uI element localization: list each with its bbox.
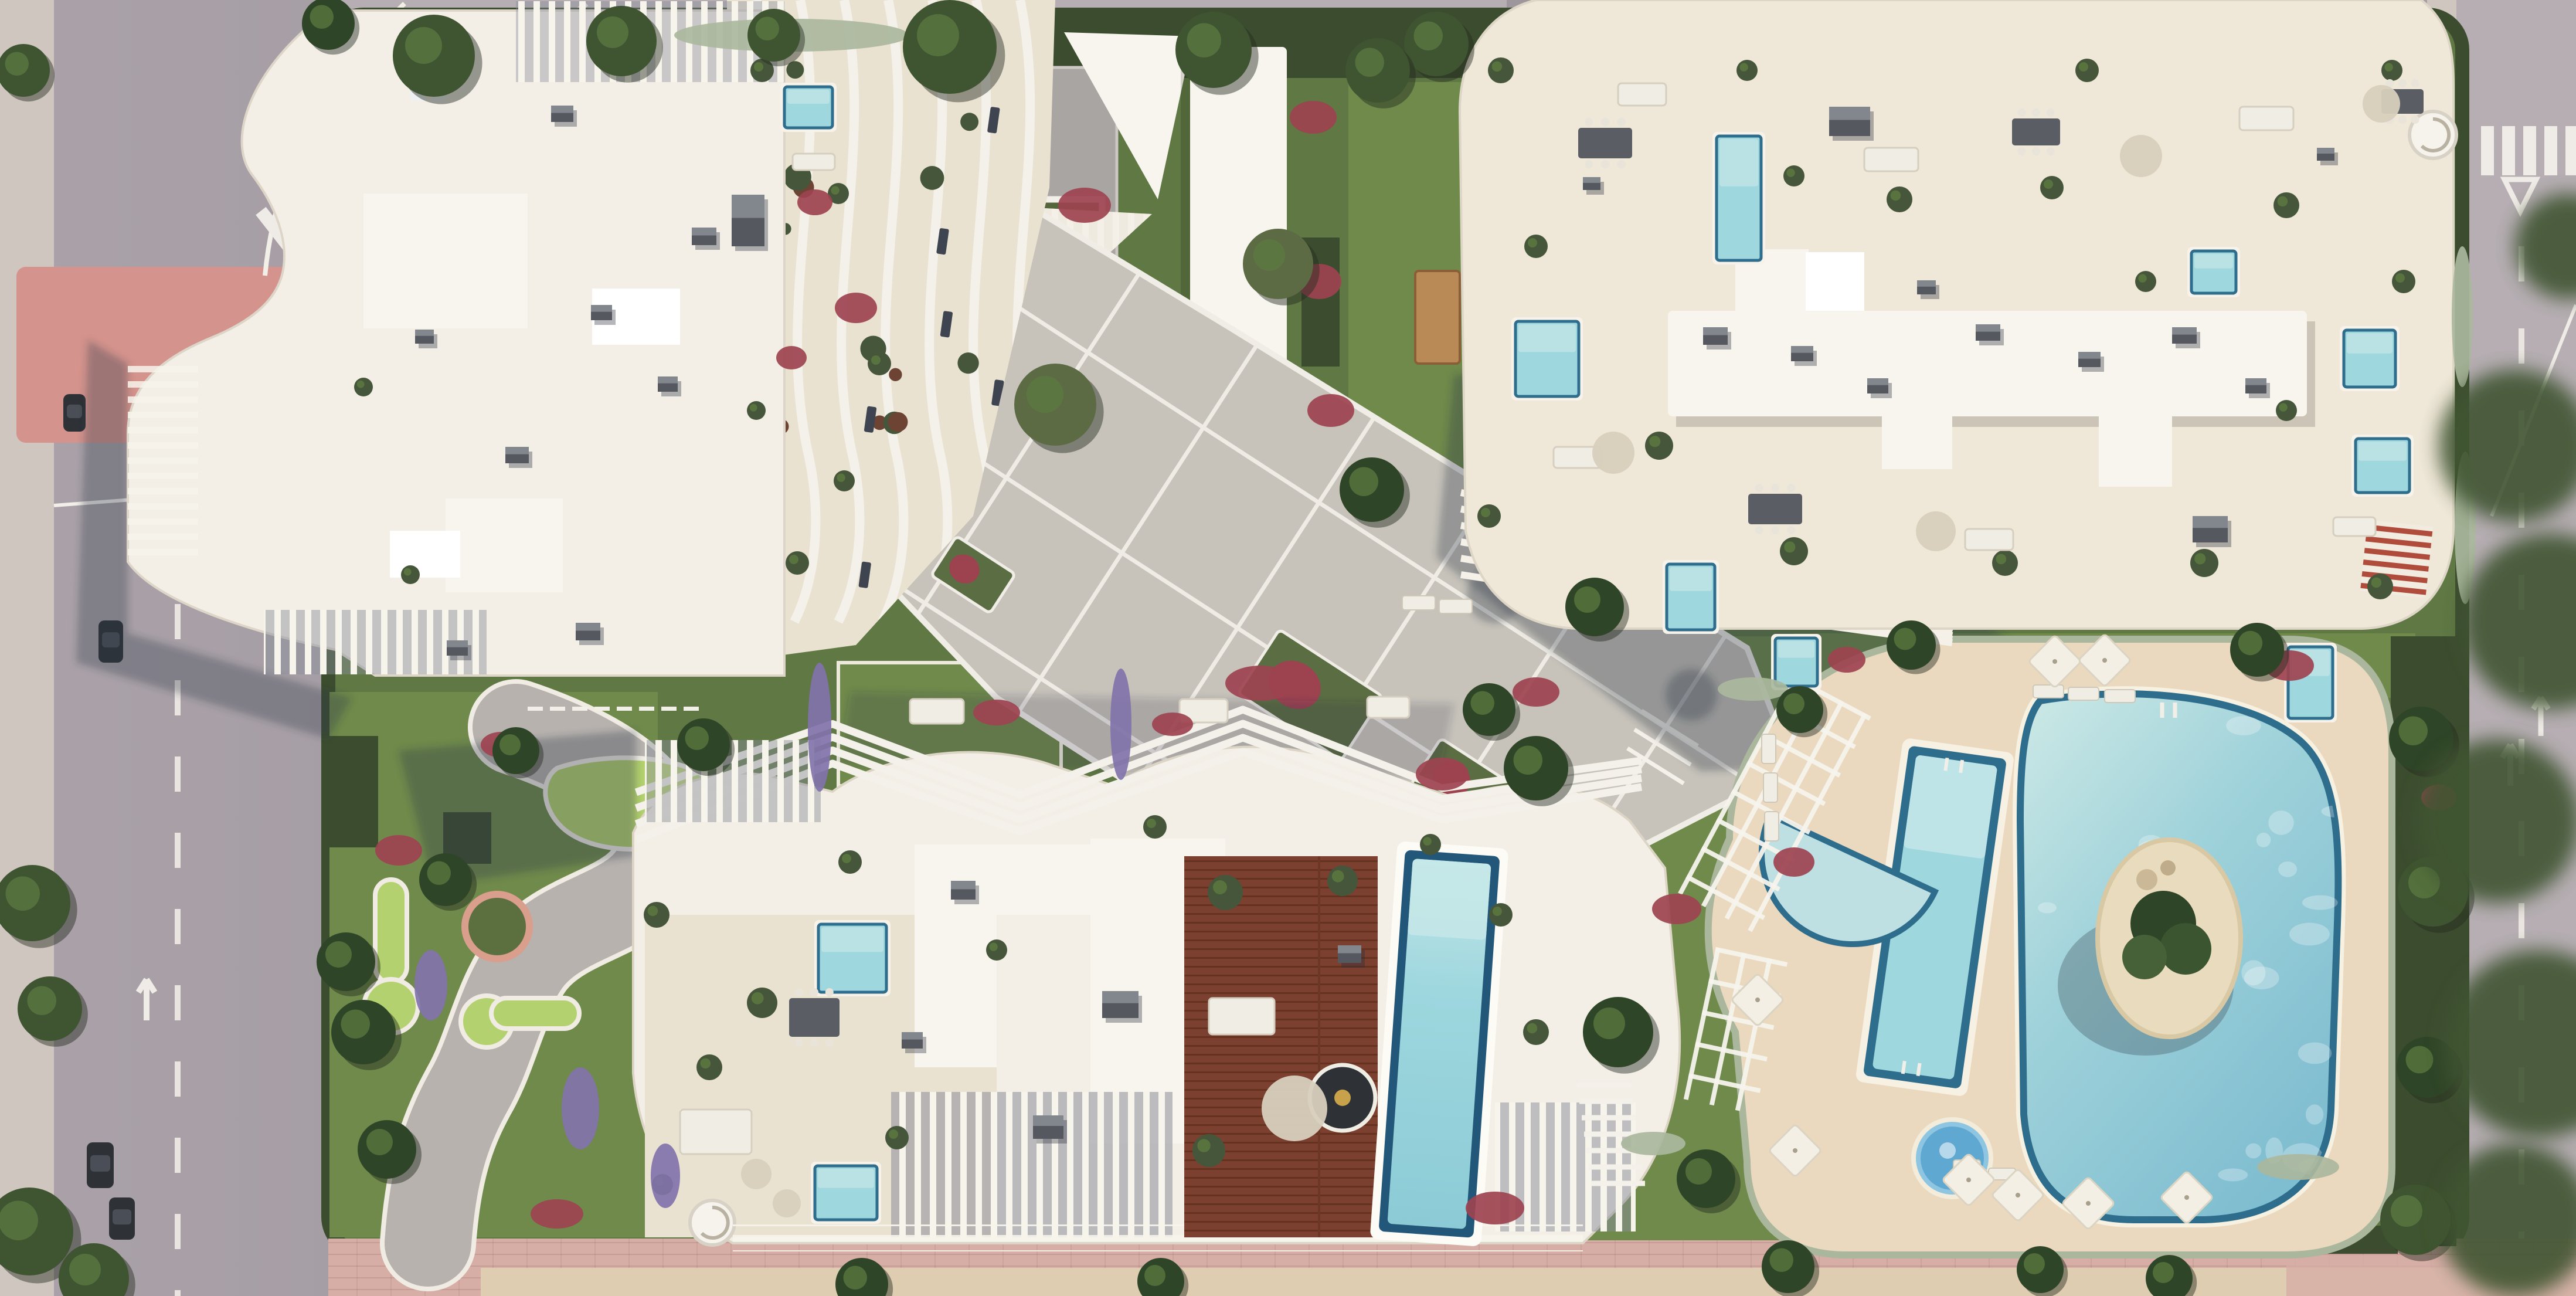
chair xyxy=(1771,526,1779,534)
bench xyxy=(572,707,587,711)
chair xyxy=(1585,160,1593,168)
lap-pool-shallow xyxy=(1903,755,1997,859)
tree-highlight xyxy=(499,734,521,755)
outdoor-sofa xyxy=(680,1110,752,1154)
terrace-plant xyxy=(644,902,670,928)
firepit xyxy=(1334,1090,1351,1106)
umbrella-pole xyxy=(1755,998,1760,1002)
tree-highlight xyxy=(6,877,40,911)
sun-lounger xyxy=(2033,685,2064,698)
terrace-plant xyxy=(1327,866,1358,896)
tree-highlight xyxy=(341,1010,371,1039)
chair xyxy=(825,988,834,996)
roof-volume xyxy=(390,531,460,578)
tree-highlight xyxy=(1593,1007,1625,1039)
tree-highlight xyxy=(1144,1265,1165,1286)
zebra-stripe xyxy=(2565,126,2576,175)
dining-table xyxy=(789,998,840,1037)
terrace-plant-light xyxy=(648,906,658,917)
lane-dash xyxy=(2519,903,2524,938)
tree-highlight xyxy=(2153,1262,2174,1283)
terrace-plant xyxy=(401,565,420,584)
caustic xyxy=(2302,895,2338,910)
terrace-plant-light xyxy=(1891,191,1901,201)
round-rug xyxy=(1592,432,1634,474)
lane-dash xyxy=(2519,328,2524,364)
terrace-plant-light xyxy=(2395,273,2405,283)
terrace-plant-light xyxy=(754,62,763,72)
lane-dash xyxy=(175,985,181,1020)
lane-dash xyxy=(175,833,181,868)
ac-unit-top xyxy=(658,376,678,384)
ac-unit-top xyxy=(732,195,764,218)
terrace-plant-light xyxy=(2138,274,2146,282)
umbrella-pole xyxy=(2052,659,2057,664)
chair xyxy=(1601,160,1609,168)
terrace-plant xyxy=(1783,165,1804,186)
terrace-plant-light xyxy=(1528,238,1537,247)
umbrella-pole xyxy=(1793,1148,1797,1153)
tree-highlight xyxy=(310,5,334,29)
pool-shallow xyxy=(1719,139,1758,186)
ac-unit-top xyxy=(1917,280,1936,287)
bench xyxy=(639,707,654,711)
chair xyxy=(2398,116,2407,124)
outdoor-sofa xyxy=(2239,107,2293,130)
car-roof xyxy=(113,1209,131,1224)
tree-highlight xyxy=(1355,48,1385,77)
red-flower-bed xyxy=(1466,1192,1524,1224)
rooftop-pool-shelf xyxy=(1408,859,1491,940)
caustic xyxy=(2298,1042,2332,1064)
tree-highlight xyxy=(1783,693,1804,714)
terrace-plant-light xyxy=(1527,1023,1538,1034)
chair xyxy=(795,1039,803,1047)
zebra-stripe xyxy=(2544,126,2557,175)
building-a xyxy=(128,0,1055,676)
tree-highlight xyxy=(1514,746,1543,775)
terrace-plant xyxy=(957,352,978,374)
island-rock xyxy=(2136,869,2157,890)
red-flower-bed xyxy=(1416,758,1469,791)
ac-unit-top xyxy=(1703,327,1728,335)
white-flower-hedge xyxy=(1718,677,1788,701)
terrace-plant xyxy=(2075,59,2099,82)
car-roof xyxy=(67,405,82,418)
roof-volume xyxy=(446,498,563,592)
terrace-plant-light xyxy=(831,186,839,194)
sun-lounger xyxy=(1762,734,1776,764)
tree-highlight xyxy=(1350,467,1379,497)
terrace-plant xyxy=(885,1126,909,1149)
terrace-plant xyxy=(838,850,862,874)
jacuzzi-foam xyxy=(1939,1142,1956,1159)
ac-unit-top xyxy=(2172,327,2197,335)
terrace-plant-light xyxy=(1784,541,1795,552)
round-rug xyxy=(773,1189,801,1217)
red-flower-bed xyxy=(1773,847,1814,877)
terrace-plant-light xyxy=(837,473,845,481)
caustic xyxy=(2038,903,2057,914)
chair xyxy=(795,988,803,996)
chair xyxy=(810,988,818,996)
bench xyxy=(550,707,565,711)
terrace-plant xyxy=(2190,549,2218,577)
terrace-plant-light xyxy=(789,555,798,564)
pool-shallow xyxy=(821,927,883,952)
umbrella-pole xyxy=(2184,1195,2189,1200)
purple-flower-bed xyxy=(562,1067,599,1149)
terrace-plant-light xyxy=(2044,179,2053,189)
red-flower-bed xyxy=(1307,394,1354,427)
ac-unit-top xyxy=(1791,346,1813,353)
chair xyxy=(2411,116,2419,124)
island-palm xyxy=(2160,923,2211,975)
bench xyxy=(661,707,677,711)
tree-highlight xyxy=(405,27,442,64)
round-rug xyxy=(2363,85,2400,123)
chair xyxy=(1585,118,1593,126)
caustic xyxy=(2289,922,2330,945)
ac-unit-top xyxy=(692,228,716,236)
bench xyxy=(617,707,632,711)
chair xyxy=(2017,147,2026,155)
tree-highlight xyxy=(366,1129,393,1155)
red-flower-bed xyxy=(835,293,877,323)
tree-highlight xyxy=(1471,691,1495,715)
chair xyxy=(1617,160,1626,168)
terrace-plant xyxy=(747,988,777,1018)
terrace-plant-light xyxy=(1332,870,1344,883)
tree-highlight xyxy=(2399,717,2428,746)
terrace-plant xyxy=(889,368,902,381)
ac-unit-top xyxy=(447,640,468,647)
outdoor-sofa xyxy=(1864,148,1918,171)
pool-shallow xyxy=(818,1169,874,1188)
lane-dash xyxy=(175,1214,181,1249)
sun-lounger xyxy=(1439,599,1472,613)
dining-table xyxy=(1578,128,1632,158)
umbrella-pole xyxy=(1966,1178,1971,1182)
lane-dash xyxy=(175,604,181,639)
lane-dash xyxy=(175,1061,181,1097)
pool-shallow xyxy=(1670,567,1712,591)
tree-highlight xyxy=(1574,586,1600,613)
terrace-plant xyxy=(2135,271,2156,292)
tree-highlight xyxy=(2406,1046,2434,1074)
chair xyxy=(1755,526,1763,534)
tree-highlight xyxy=(1253,239,1285,271)
tree-highlight xyxy=(917,14,959,56)
bench xyxy=(684,707,699,711)
red-flower-bed xyxy=(776,346,807,369)
umbrella-pole xyxy=(2086,1201,2091,1206)
round-rug xyxy=(2120,135,2162,177)
palm-shadow xyxy=(1666,669,1717,721)
terrace-plant-light xyxy=(357,381,365,388)
ac-unit-top xyxy=(591,305,612,312)
aerial-site-render xyxy=(0,0,2576,1296)
tree-highlight xyxy=(2024,1253,2045,1274)
dining-table xyxy=(1748,494,1802,524)
ac-unit-top xyxy=(415,330,434,336)
purple-flower-bed xyxy=(651,1144,680,1208)
caustic xyxy=(2256,833,2271,847)
tree-highlight xyxy=(1187,23,1222,58)
zebra-stripe xyxy=(2502,126,2515,175)
purple-flower-bed xyxy=(808,663,831,792)
tree-highlight xyxy=(325,941,352,968)
terrace-plant xyxy=(2392,270,2415,293)
outdoor-sofa xyxy=(2333,517,2376,536)
red-flower-bed xyxy=(1652,894,1701,924)
outdoor-sofa xyxy=(793,154,835,170)
outdoor-sofa xyxy=(1965,529,2013,550)
chair xyxy=(2047,147,2055,155)
blurred-tree xyxy=(2415,739,2576,903)
terrace-plant xyxy=(1420,834,1441,855)
ac-unit-top xyxy=(2317,148,2334,154)
terrace-plant xyxy=(1208,875,1243,910)
terrace-plant xyxy=(2273,192,2299,218)
terrace-plant xyxy=(1887,186,1912,212)
round-rug xyxy=(1262,1076,1327,1141)
terrace-plant xyxy=(1992,550,2018,576)
terrace-plant-light xyxy=(1481,508,1490,517)
ac-unit-top xyxy=(1829,107,1870,120)
terrace-plant xyxy=(2276,400,2297,421)
tree-highlight xyxy=(2391,1195,2422,1227)
caustic xyxy=(2245,1144,2261,1159)
terrace-plant xyxy=(2040,176,2064,199)
outdoor-sofa xyxy=(1367,697,1409,718)
island-palm xyxy=(2122,935,2167,979)
ac-unit-top xyxy=(576,623,600,631)
red-flower-bed xyxy=(1225,666,1296,701)
roof-volume xyxy=(1882,413,1952,469)
terrace-plant-light xyxy=(1197,1139,1210,1152)
chair xyxy=(2047,108,2055,117)
caustic xyxy=(2278,861,2297,877)
zebra-stripe xyxy=(2523,126,2536,175)
tree-highlight xyxy=(1685,1158,1712,1185)
ac-unit-top xyxy=(2078,352,2101,359)
terrace-plant-light xyxy=(2194,553,2205,564)
sun-lounger xyxy=(1763,773,1778,802)
beach-sand xyxy=(481,1268,2576,1296)
pool-shallow xyxy=(2347,333,2393,354)
chair xyxy=(2398,79,2407,87)
terrace-plant-light xyxy=(2384,63,2393,71)
lane-dash xyxy=(175,909,181,944)
chair xyxy=(1787,526,1796,534)
terrace-plant xyxy=(696,1054,722,1080)
terrace-plant xyxy=(834,470,855,491)
chair xyxy=(2411,79,2419,87)
chair xyxy=(1771,484,1779,492)
terrace-plant-light xyxy=(2079,62,2088,72)
chair xyxy=(1787,484,1796,492)
roof-volume xyxy=(2099,413,2172,487)
terrace-plant-light xyxy=(750,404,757,412)
terrace-plant xyxy=(2381,60,2402,81)
terrace-plant xyxy=(1524,235,1548,258)
terrace-plant xyxy=(986,939,1007,961)
terrace-plant xyxy=(1780,537,1808,565)
umbrella-pole xyxy=(2102,658,2107,663)
umbrella-pole xyxy=(2016,1193,2020,1197)
terrace-plant xyxy=(1143,815,1167,839)
terrace-plant-light xyxy=(752,992,764,1005)
tree-highlight xyxy=(597,16,628,48)
island-rock xyxy=(2160,860,2176,876)
ac-unit-top xyxy=(1583,177,1600,183)
dining-table xyxy=(2012,118,2060,145)
terrace-plant-light xyxy=(1649,436,1660,447)
lane-dash xyxy=(175,756,181,792)
pool-shallow xyxy=(787,90,830,104)
terrace-plant-light xyxy=(2278,196,2288,207)
terrace-plant xyxy=(1488,57,1514,83)
pool-shallow xyxy=(1518,324,1576,352)
caustic xyxy=(2218,1168,2248,1181)
pool-shallow xyxy=(2358,442,2407,461)
outdoor-sofa xyxy=(1618,83,1666,106)
tree-highlight xyxy=(1414,22,1443,51)
tree-highlight xyxy=(0,1201,38,1241)
terrace-plant xyxy=(354,378,373,396)
putting-green-lane xyxy=(491,998,579,1029)
ac-unit-top xyxy=(902,1032,923,1040)
red-flower-bed xyxy=(1152,713,1193,736)
terrace-plant-light xyxy=(1423,837,1431,845)
terrace-plant-light xyxy=(1492,62,1503,72)
white-flower-hedge xyxy=(1621,1132,1685,1155)
terrace-plant xyxy=(1192,1134,1225,1167)
car-roof xyxy=(90,1155,110,1172)
red-flower-bed xyxy=(1513,677,1559,707)
ac-unit-top xyxy=(551,106,573,113)
round-rug xyxy=(1916,511,1956,551)
left-sidewalk xyxy=(0,0,54,1296)
ac-unit-top xyxy=(951,881,976,889)
terrace-plant xyxy=(1736,60,1758,81)
red-flower-bed xyxy=(531,1199,583,1229)
round-rug xyxy=(741,1159,772,1189)
terrace-plant-light xyxy=(1213,880,1227,894)
terrace-plant-light xyxy=(889,1129,898,1139)
red-flower-bed xyxy=(973,700,1020,725)
outdoor-sofa xyxy=(910,699,964,724)
caustic xyxy=(2244,966,2279,989)
terrace-plant-light xyxy=(2279,403,2287,411)
sun-lounger xyxy=(1765,812,1779,841)
chair xyxy=(1617,118,1626,126)
caustic xyxy=(2268,810,2293,834)
tree-highlight xyxy=(5,52,29,76)
red-flower-bed xyxy=(1058,188,1111,223)
terrace-plant-light xyxy=(1147,819,1156,828)
pool-shallow xyxy=(2194,254,2233,269)
chair xyxy=(1755,484,1763,492)
wood-deck xyxy=(1184,856,1378,1237)
building-b xyxy=(1460,0,2456,643)
ac-unit-top xyxy=(1976,324,2000,332)
chair xyxy=(1601,118,1609,126)
pool-shallow xyxy=(1778,641,1814,658)
chair xyxy=(2032,147,2040,155)
terrace-plant xyxy=(960,113,978,131)
terrace-plant xyxy=(888,412,908,432)
roof-volume xyxy=(363,194,528,328)
terrace-plant xyxy=(2367,574,2393,599)
roof-volume xyxy=(1806,252,1864,311)
bench xyxy=(594,707,610,711)
red-flower-bed xyxy=(375,835,422,866)
terrace-plant xyxy=(868,352,891,375)
tree-highlight xyxy=(28,986,57,1016)
lane-dash xyxy=(175,1290,181,1296)
red-flower-bed xyxy=(1828,647,1865,673)
terrace-plant-light xyxy=(871,355,881,365)
terrace-plant-light xyxy=(404,568,412,576)
caustic xyxy=(2306,1104,2323,1124)
red-flower-bed xyxy=(797,189,832,215)
tree-highlight xyxy=(844,1266,868,1290)
chair xyxy=(825,1039,834,1047)
terrace-plant-light xyxy=(1739,63,1748,71)
red-flower-bed xyxy=(1290,101,1337,134)
circular-planter xyxy=(465,894,529,959)
white-flower-hedge xyxy=(2452,246,2473,387)
bench xyxy=(528,707,543,711)
chair xyxy=(2017,108,2026,117)
ac-unit-top xyxy=(1338,945,1361,954)
terrace-plant xyxy=(1523,1019,1549,1045)
chair xyxy=(2032,108,2040,117)
ac-unit-top xyxy=(2245,378,2266,385)
terrace-plant-light xyxy=(2371,578,2382,588)
purple-flower-bed xyxy=(414,950,447,1020)
terrace-plant-light xyxy=(701,1058,711,1069)
tree-highlight xyxy=(1770,1248,1794,1273)
tree-highlight xyxy=(69,1254,101,1285)
terrace-plant-light xyxy=(989,942,997,951)
ac-unit-top xyxy=(505,447,529,454)
purple-flower-bed xyxy=(1110,669,1131,780)
ac-unit-top xyxy=(2193,516,2228,528)
sun-lounger xyxy=(2105,690,2135,703)
wooden-dining-table xyxy=(1415,271,1460,364)
terrace-plant xyxy=(1645,432,1673,460)
tree-highlight xyxy=(685,727,709,751)
zebra-stripe xyxy=(2481,126,2494,175)
white-flower-hedge xyxy=(2257,1154,2339,1180)
terrace-plant xyxy=(1477,504,1501,528)
tree-highlight xyxy=(427,861,451,886)
tree-highlight xyxy=(2238,631,2262,655)
ac-unit-top xyxy=(1102,991,1139,1003)
chair xyxy=(810,1039,818,1047)
sun-lounger xyxy=(1402,596,1435,610)
hedge-block xyxy=(328,736,378,847)
outdoor-sofa xyxy=(1209,998,1275,1034)
ac-unit-top xyxy=(1033,1115,1063,1126)
terrace-plant-light xyxy=(1996,554,2007,565)
lane-dash xyxy=(175,1138,181,1173)
tree-highlight xyxy=(756,17,780,41)
tree-highlight xyxy=(1027,376,1063,413)
